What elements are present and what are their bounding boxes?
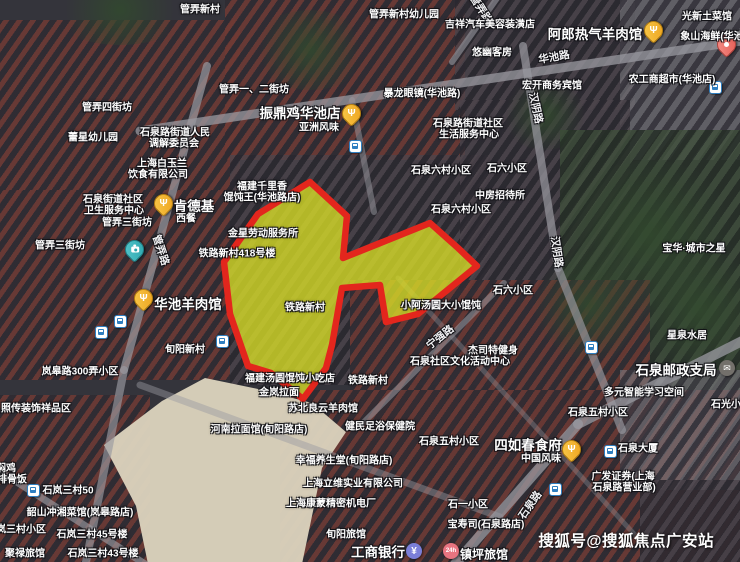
poi-label[interactable]: 石泉六村小区 [431,201,491,216]
bus-stop-icon[interactable] [216,335,229,348]
poi-label[interactable]: 石光小区 [711,396,740,411]
bus-stop-icon[interactable] [114,315,127,328]
poi-label[interactable]: 农工商超市(华池店) [629,71,716,86]
poi-label[interactable]: 上海康蒙精密机电厂 [286,495,376,510]
poi-label[interactable]: 聚禄旅馆 [5,545,45,560]
poi-label[interactable]: 苏北良云羊肉馆 [288,400,358,415]
mail-icon[interactable]: ✉ [719,360,735,376]
watermark: 搜狐号@搜狐焦点广安站 [538,529,714,551]
poi-label[interactable]: 石泉邮政支局 [636,359,717,379]
poi-label[interactable]: 象山海鲜(华池 [680,28,740,43]
poi-label[interactable]: 管弄一、二街坊 [219,81,289,96]
poi-label[interactable]: 旬阳旅馆 [326,526,366,541]
poi-label[interactable]: 铁路新村418号楼 [199,245,276,260]
poi-label[interactable]: 健民足浴保健院 [345,418,415,433]
poi-label[interactable]: 星泉水居 [667,327,707,342]
poi-label[interactable]: 亚洲风味 [299,119,339,134]
poi-label[interactable]: 石泉路营业部) [592,479,655,494]
poi-label[interactable]: 光新土菜馆 [682,8,732,23]
poi-label[interactable]: 工商银行 [351,541,405,561]
bus-stop-icon[interactable] [549,483,562,496]
bus-stop-icon[interactable] [349,140,362,153]
poi-label[interactable]: 石岚三村43号楼 [67,545,138,560]
poi-label[interactable]: 中房招待所 [475,187,525,202]
poi-label[interactable]: 暴龙眼镜(华池路) [384,85,461,100]
poi-label[interactable]: 管弄新村幼儿园 [369,6,439,21]
poi-label[interactable]: 排骨饭 [0,471,27,486]
poi-label[interactable]: 金星劳动服务所 [228,225,298,240]
poi-label[interactable]: 管弄三街坊 [102,214,152,229]
poi-label[interactable]: 河南拉面馆(旬阳路店) [211,421,308,436]
poi-label[interactable]: 西餐 [176,210,196,225]
poi-label[interactable]: 石六小区 [487,160,527,175]
poi-label[interactable]: 宝寿司(石泉路店) [448,516,525,531]
bank-yuan-icon[interactable]: ¥ [406,543,422,559]
poi-label[interactable]: 饮食有限公司 [128,166,188,181]
poi-label[interactable]: 阿郎热气羊肉馆 [548,23,643,43]
poi-label[interactable]: 旬阳新村 [165,341,205,356]
poi-label[interactable]: 照传装饰祥品区 [1,400,71,415]
poi-label[interactable]: 管弄新村 [180,1,220,16]
bus-stop-icon[interactable] [604,445,617,458]
poi-label[interactable]: 石泉大厦 [618,440,658,455]
poi-label[interactable]: 幸福养生堂(旬阳路店) [296,452,393,467]
satellite-map[interactable]: ΨΨΨΨΨ✉¥24h 管弄新村管弄新村幼儿园管弄路光新土菜馆吉祥汽车美容装潢店阿… [0,0,740,562]
poi-label[interactable]: 宏开商务宾馆 [522,77,582,92]
poi-label[interactable]: 石泉五村小区 [419,433,479,448]
poi-label[interactable]: 石一小区 [448,496,488,511]
bus-stop-icon[interactable] [585,341,598,354]
poi-label[interactable]: 岚皋路300弄小区 [42,363,119,378]
poi-label[interactable]: 铁路新村 [285,299,325,314]
bus-stop-icon[interactable] [27,484,40,497]
tree-canopy [250,10,370,90]
poi-label[interactable]: 石六小区 [493,282,533,297]
poi-label[interactable]: 悠幽客房 [472,44,512,59]
poi-label[interactable]: 福建汤圆馄饨小吃店 [245,370,335,385]
poi-label[interactable]: 中国风味 [521,450,561,465]
poi-label[interactable]: 石泉社区文化活动中心 [410,353,510,368]
poi-label[interactable]: 管弄四街坊 [82,99,132,114]
poi-label[interactable]: 石岚三村50 [42,482,93,497]
bus-stop-icon[interactable] [95,326,108,339]
poi-label[interactable]: 华池羊肉馆 [154,293,222,313]
poi-label[interactable]: 蕾星幼儿园 [68,129,118,144]
poi-label[interactable]: 吉祥汽车美容装潢店 [445,16,535,31]
poi-label[interactable]: 管弄三街坊 [35,237,85,252]
poi-label[interactable]: 多元智能学习空间 [604,384,684,399]
poi-label[interactable]: 上海立维实业有限公司 [303,475,403,490]
poi-label[interactable]: 韶山冲湘菜馆(岚皋路店) [27,504,134,519]
poi-label[interactable]: 生活服务中心 [439,126,499,141]
poi-label[interactable]: 石岚三村45号楼 [56,526,127,541]
poi-label[interactable]: 石岚三村小区 [0,521,46,536]
hotel-24h-icon[interactable]: 24h [443,543,459,559]
poi-label[interactable]: 镇坪旅馆 [460,546,508,562]
poi-label[interactable]: 调解委员会 [149,135,199,150]
poi-label[interactable]: 铁路新村 [348,372,388,387]
poi-label[interactable]: 石泉五村小区 [568,404,628,419]
poi-label[interactable]: 宝华·城市之星 [662,240,725,255]
poi-label[interactable]: 金岚拉面 [259,384,299,399]
poi-label[interactable]: 小阿汤圆大小馄饨 [401,297,481,312]
poi-label[interactable]: 石泉六村小区 [411,162,471,177]
poi-label[interactable]: 馄饨王(华池路店) [224,189,301,204]
